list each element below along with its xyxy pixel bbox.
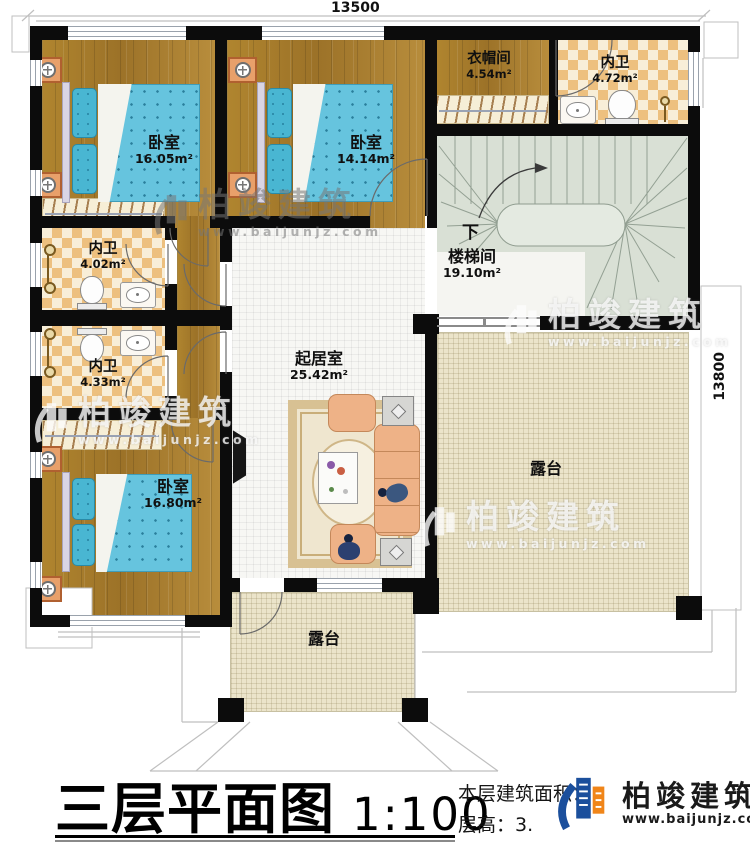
drawing-title: 三层平面图	[55, 782, 335, 837]
company-logo-icon	[552, 772, 614, 836]
company-logo: 柏竣建筑www.baijunjz.com	[552, 772, 750, 836]
door-arc	[171, 420, 213, 462]
room-label-terrace-bottom: 露台	[308, 630, 340, 648]
floor-height-note: 层高：3.	[458, 810, 533, 837]
room-label-bathroom-top-right: 内卫4.72m²	[592, 56, 637, 85]
room-label-bedroom-bottom: 卧室16.80m²	[144, 478, 202, 509]
door-arc	[184, 264, 226, 306]
room-label-bedroom-top-left: 卧室16.05m²	[135, 134, 193, 165]
room-label-terrace-right: 露台	[530, 460, 562, 478]
room-label-bedroom-top-middle: 卧室14.14m²	[337, 134, 395, 165]
dimension-right: 13800	[712, 352, 728, 401]
stair-direction-label: 下	[462, 218, 479, 243]
title-underline-2	[55, 840, 455, 842]
door-arc	[184, 332, 226, 374]
title-underline	[55, 835, 455, 838]
door-arc	[170, 228, 208, 266]
room-label-cloakroom: 衣帽间4.54m²	[466, 52, 511, 81]
room-label-bathroom-mid-upper: 内卫4.02m²	[80, 242, 125, 271]
door-arc	[240, 592, 282, 634]
door-arc	[370, 159, 427, 216]
floor-plan: 卧室16.05m² 卧室14.14m² 衣帽间4.54m² 内卫4.72m² 下…	[0, 0, 750, 843]
door-arc	[126, 356, 168, 398]
room-label-bathroom-mid-lower: 内卫4.33m²	[80, 360, 125, 389]
door-arcs	[0, 0, 750, 843]
dimension-top: 13500	[331, 0, 380, 16]
room-label-living-room: 起居室25.42m²	[290, 350, 348, 381]
room-label-stairwell: 楼梯间19.10m²	[443, 248, 501, 279]
door-arc	[126, 244, 168, 286]
